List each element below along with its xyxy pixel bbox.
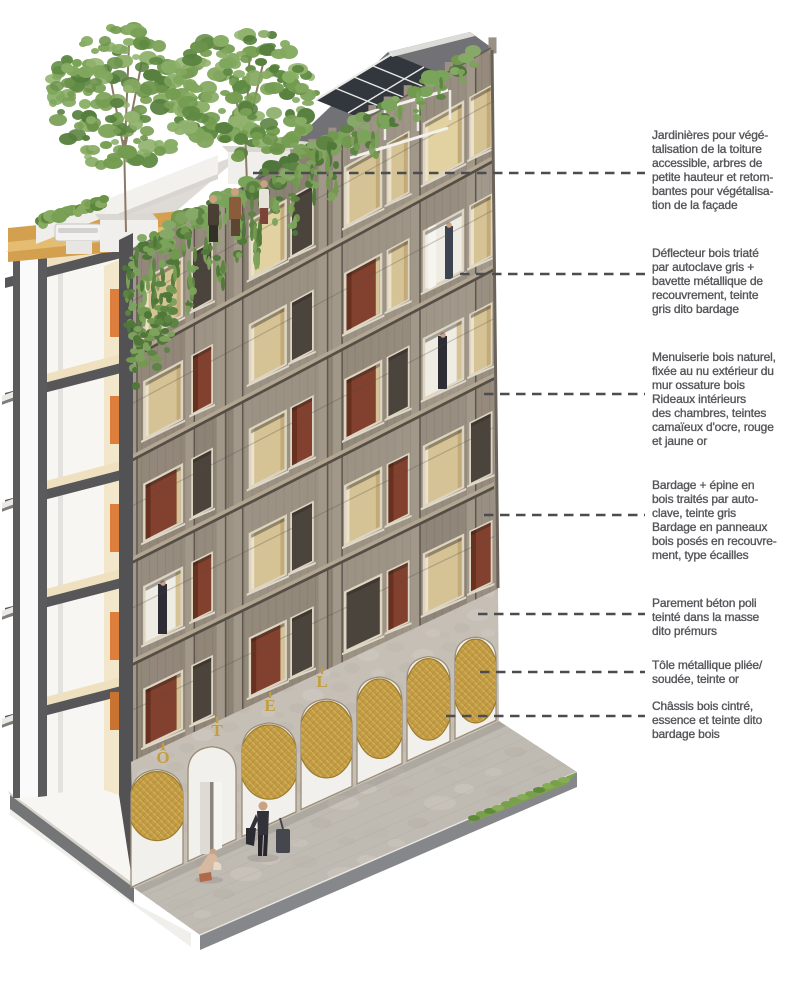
svg-text:E: E [264,696,275,715]
svg-text:T: T [211,721,223,740]
svg-text:L: L [316,672,327,691]
svg-text:Ô: Ô [156,748,169,767]
